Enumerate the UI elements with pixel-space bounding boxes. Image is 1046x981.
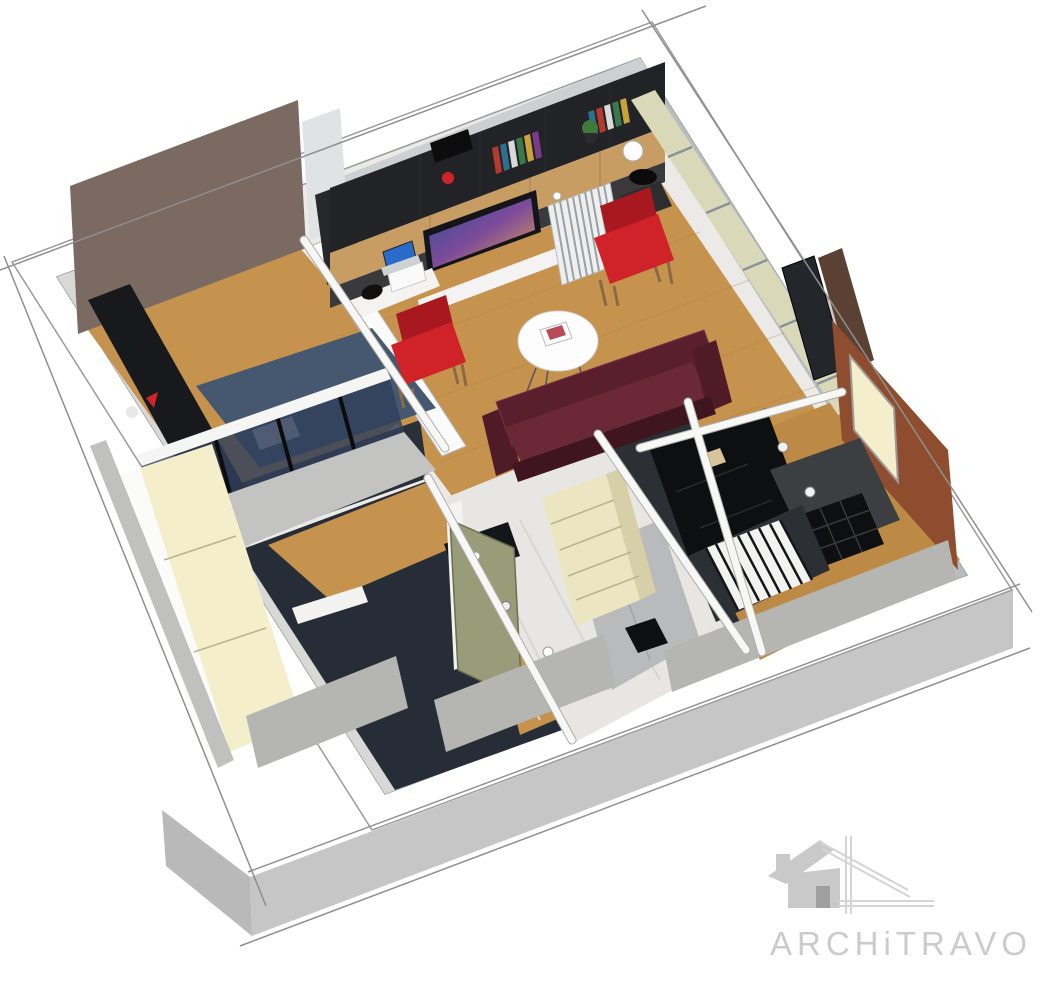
apartment-3d-render: ARCHiTRAVO — [0, 0, 1046, 981]
logo-wall — [788, 868, 840, 908]
door-mark — [778, 442, 788, 452]
logo-door — [816, 886, 830, 908]
sphere-lamp — [623, 141, 643, 161]
watermark-logo: ARCHiTRAVO — [768, 836, 1032, 962]
sink-mark — [805, 487, 815, 497]
floorplan-canvas: ARCHiTRAVO — [0, 0, 1046, 981]
wardrobe-white-knob — [126, 406, 138, 418]
plant-pot — [584, 133, 597, 143]
plinth-left-face — [162, 810, 252, 936]
red-vase — [442, 172, 454, 184]
logo-chimney — [776, 854, 790, 874]
white-mug — [553, 192, 561, 200]
brand-text: ARCHiTRAVO — [770, 925, 1032, 962]
pendant-lamp — [629, 169, 657, 185]
